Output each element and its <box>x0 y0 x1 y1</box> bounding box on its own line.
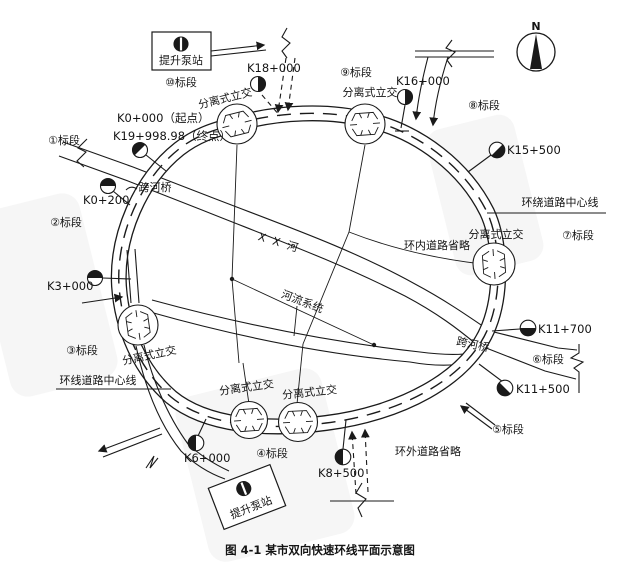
interchange-symbol <box>231 402 268 439</box>
road-break-s8 <box>446 40 455 67</box>
station-label-k0-200: K0+200 <box>83 193 129 207</box>
section-label-4: ④标段 <box>256 446 288 460</box>
interchange-symbol <box>345 104 385 144</box>
section-label-1: ①标段 <box>48 133 80 147</box>
pump-icon <box>174 37 188 51</box>
road-break-pump <box>146 456 158 468</box>
interchange-symbol <box>118 305 158 345</box>
station-marker-k18-000 <box>251 77 266 92</box>
pump-station-top: 提升泵站 <box>152 32 211 70</box>
interchange-symbol <box>473 243 515 285</box>
section-label-5: ⑤标段 <box>492 422 524 436</box>
station-marker-k6-000 <box>188 435 204 451</box>
section-label-9: ⑨标段 <box>340 65 372 79</box>
river-break-right <box>571 344 583 393</box>
interchange-label: 分离式立交 <box>469 227 524 241</box>
station-label-k6-000: K6+000 <box>184 451 230 465</box>
station-label-k18-000: K18+000 <box>247 61 301 75</box>
inner-roads-omitted-label: 环内道路省略 <box>404 238 470 252</box>
north-compass: N <box>517 20 555 71</box>
river-bridge-label: 跨河桥 <box>139 181 172 194</box>
river-name-label: X X 河 <box>257 230 302 255</box>
station-label-k16-000: K16+000 <box>396 74 450 88</box>
ring-centerline-outer-label: 环绕道路中心线 <box>522 195 599 209</box>
station-marker-k16-000 <box>398 90 413 105</box>
station-marker-k0-200 <box>101 179 116 194</box>
section-label-8: ⑧标段 <box>468 98 500 112</box>
river-system-callout <box>230 277 376 347</box>
station-label-end: K19+998.98（终点） <box>113 129 231 143</box>
road-break-k8 <box>356 483 366 517</box>
pump-station-label: 提升泵站 <box>159 53 203 67</box>
outer-roads-omitted-label: 环外道路省略 <box>395 444 461 458</box>
station-label-k11-500: K11+500 <box>516 382 570 396</box>
interchange-label: 分离式立交 <box>343 85 398 99</box>
figure-caption: 图 4-1 某市双向快速环线平面示意图 <box>225 543 415 557</box>
section-label-2: ②标段 <box>50 215 82 229</box>
station-marker-k8-500 <box>335 449 351 465</box>
station-label-k11-700: K11+700 <box>538 322 592 336</box>
north-label: N <box>531 20 540 33</box>
interchange-symbol <box>279 403 318 442</box>
diagram-page: 提升泵站 提升泵站 N ①标段 ②标段 ③标段 ④标段 ⑤标段 ⑥标段 ⑦标段 … <box>0 0 632 568</box>
section-label-6: ⑥标段 <box>532 352 564 366</box>
diagram-canvas: 提升泵站 提升泵站 N ①标段 ②标段 ③标段 ④标段 ⑤标段 ⑥标段 ⑦标段 … <box>0 0 632 568</box>
station-label-start: K0+000（起点） <box>117 111 209 125</box>
section-label-3: ③标段 <box>66 343 98 357</box>
section-label-7: ⑦标段 <box>562 228 594 242</box>
ring-centerline-label: 环线道路中心线 <box>60 373 137 387</box>
road-break-k18 <box>282 28 290 58</box>
station-label-k3-000: K3+000 <box>47 279 93 293</box>
station-label-k8-500: K8+500 <box>318 466 364 480</box>
station-marker-k11-700 <box>520 320 536 336</box>
station-marker-k11-500 <box>494 377 516 399</box>
section-label-10: ⑩标段 <box>165 75 197 89</box>
station-label-k15-500: K15+500 <box>507 143 561 157</box>
